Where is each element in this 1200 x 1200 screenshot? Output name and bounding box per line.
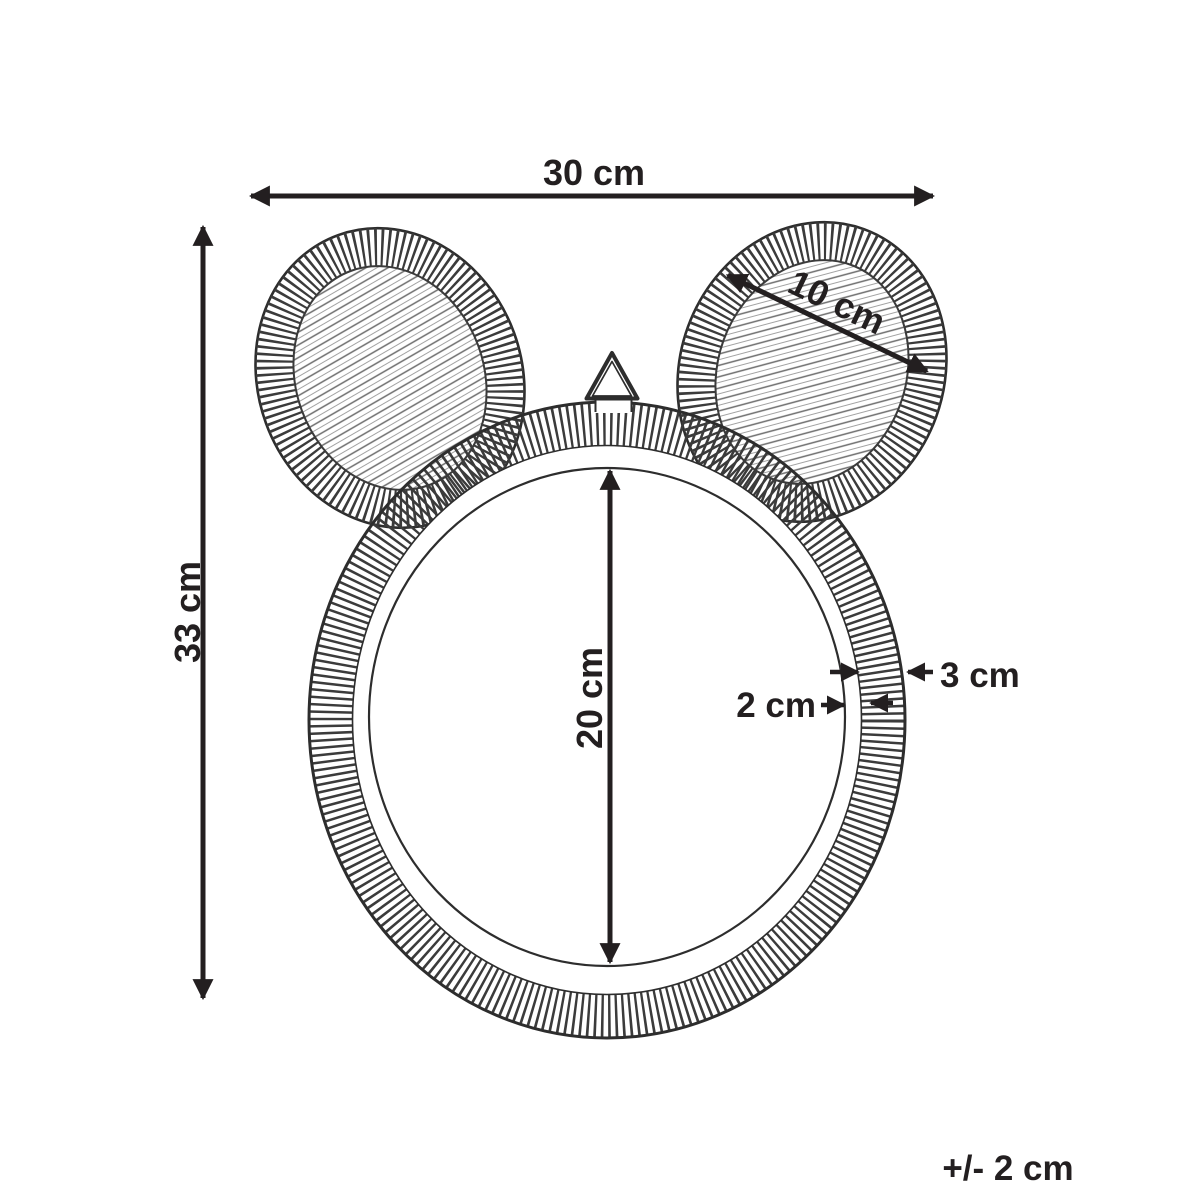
overall-width-dimension: 30 cm — [251, 152, 933, 196]
frame-width-label: 3 cm — [940, 656, 1020, 695]
inner-rim-label: 2 cm — [736, 686, 816, 725]
mirror-dimension-diagram: 30 cm 33 cm 10 cm 20 cm 3 cm — [0, 0, 1200, 1200]
overall-height-dimension: 33 cm — [167, 227, 208, 998]
hanger — [587, 353, 638, 413]
inner-rim-dimension: 2 cm — [736, 686, 893, 725]
overall-height-label: 33 cm — [167, 561, 208, 663]
mirror-diameter-label: 20 cm — [569, 647, 610, 749]
tolerance-note: +/- 2 cm — [942, 1149, 1073, 1188]
dimension-diagram-page: 30 cm 33 cm 10 cm 20 cm 3 cm — [0, 0, 1200, 1200]
overall-width-label: 30 cm — [543, 152, 645, 193]
